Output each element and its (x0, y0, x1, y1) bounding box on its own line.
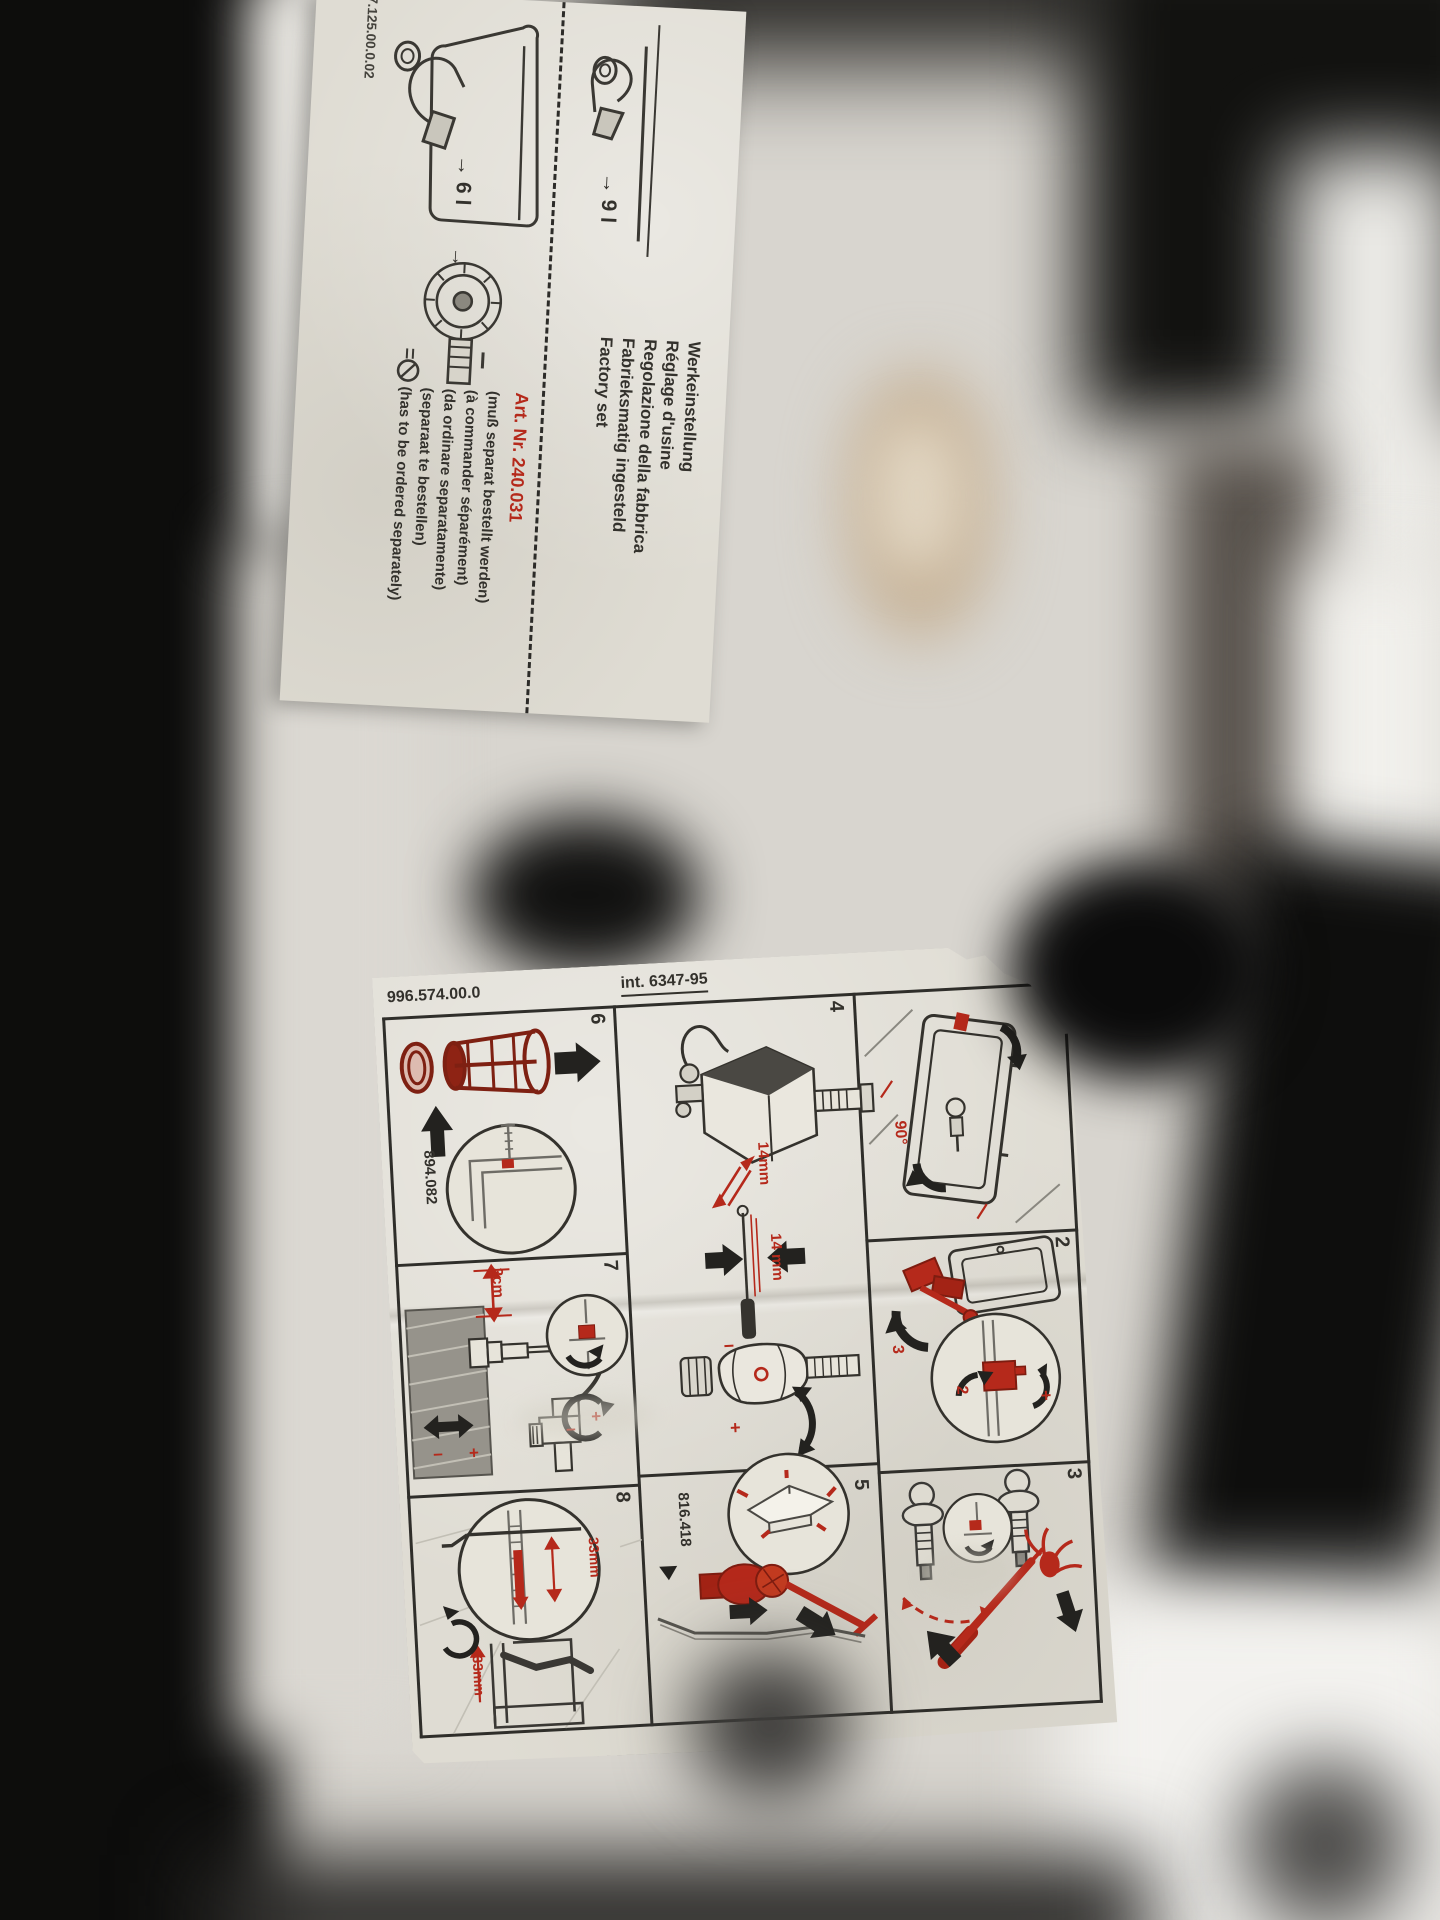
cistern-tank-drawing (372, 3, 556, 282)
reduced-volume-label: → 6 l (450, 155, 477, 206)
article-number: Art. Nr. 240.031 (504, 392, 532, 523)
step3-label: 3 (888, 1345, 906, 1355)
sheet-revision-number: int. 6347-95 (620, 970, 708, 997)
factory-volume-label: → 9 l (595, 172, 622, 223)
basket-part-number: 894.082 (420, 1150, 440, 1205)
background-round-shadow-upper (470, 815, 700, 975)
leaflet-title-block: Werkeinstellung Réglage d'usine Regolazi… (584, 336, 705, 556)
panel7-plus: + (468, 1443, 479, 1463)
actuator-part-number: 816.418 (674, 1492, 694, 1547)
panel7-minus: − (433, 1445, 444, 1465)
foreground-round-shadow (1010, 860, 1270, 1080)
dim-14mm-top-label: 14mm (754, 1141, 773, 1185)
foreground-small-shadow (690, 1650, 850, 1800)
background-bottom-blob (1240, 1760, 1410, 1920)
rail-dimension-label: 33mm (586, 1537, 604, 1578)
panel8-frame-drawing (407, 1486, 651, 1736)
panel4-minus: − (723, 1336, 735, 1358)
background-wood-knob-highlight (872, 420, 962, 570)
dim-14mm-mid-label: 14 mm (767, 1233, 786, 1281)
step2-label: 2 (952, 1385, 970, 1395)
factory-tank-drawing (549, 2, 661, 307)
sheet-doc-number: 996.574.00.0 (387, 984, 481, 1007)
insert-arrow-icon (554, 1041, 602, 1083)
adjuster-knob-drawing (378, 251, 520, 403)
leaflet-form-number: 7.125.00.0.02 (361, 0, 380, 79)
depth-dimension-label: 3cm (488, 1267, 507, 1298)
panel7-wall-valve-drawing (395, 1255, 639, 1495)
panel4-plus: + (730, 1417, 742, 1439)
installation-instruction-sheet: 996.574.00.0 int. 6347-95 6 4 7 2 8 5 3 (372, 940, 1142, 1767)
frame-dimension-label: 33mm (470, 1655, 488, 1696)
panel6-strainer-drawing (382, 1007, 627, 1264)
factory-set-leaflet: Werkeinstellung Réglage d'usine Regolazi… (280, 0, 747, 723)
order-notes-block: (muß separat bestellt werden) (à command… (383, 386, 504, 606)
angle-90-label: 90° (890, 1120, 909, 1145)
background-bottom-band (200, 1855, 1150, 1920)
panel2-plus: + (1040, 1385, 1052, 1407)
